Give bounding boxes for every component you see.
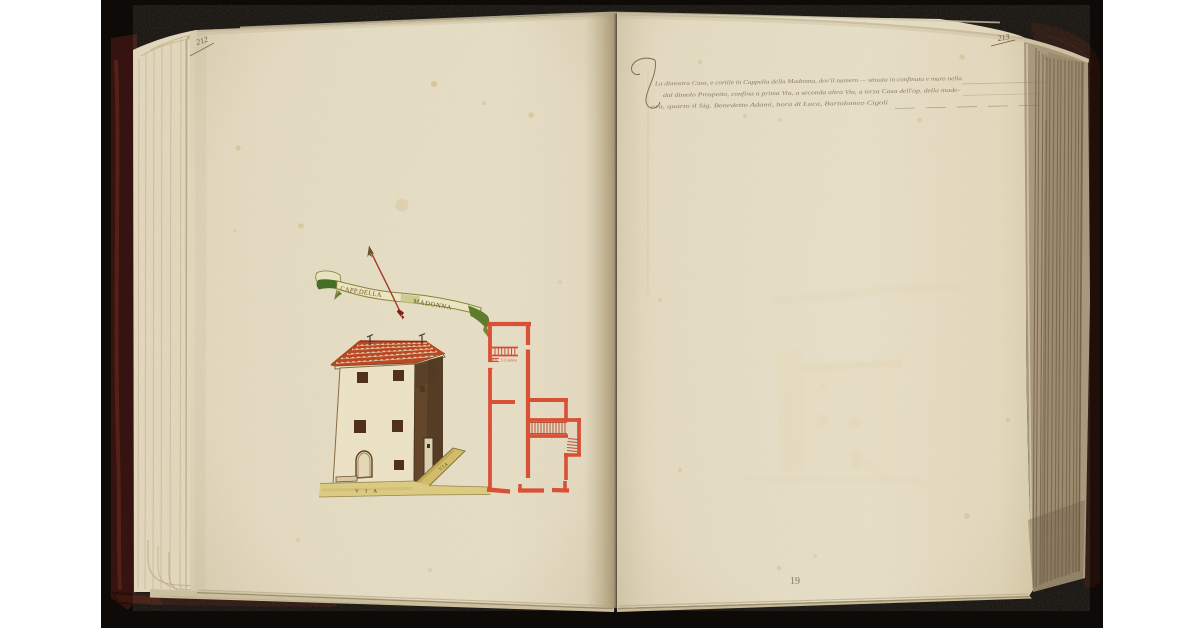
svg-text:19: 19 — [790, 576, 800, 587]
svg-text:V I A: V I A — [355, 489, 380, 495]
svg-text:S.Cantina: S.Cantina — [501, 359, 517, 363]
